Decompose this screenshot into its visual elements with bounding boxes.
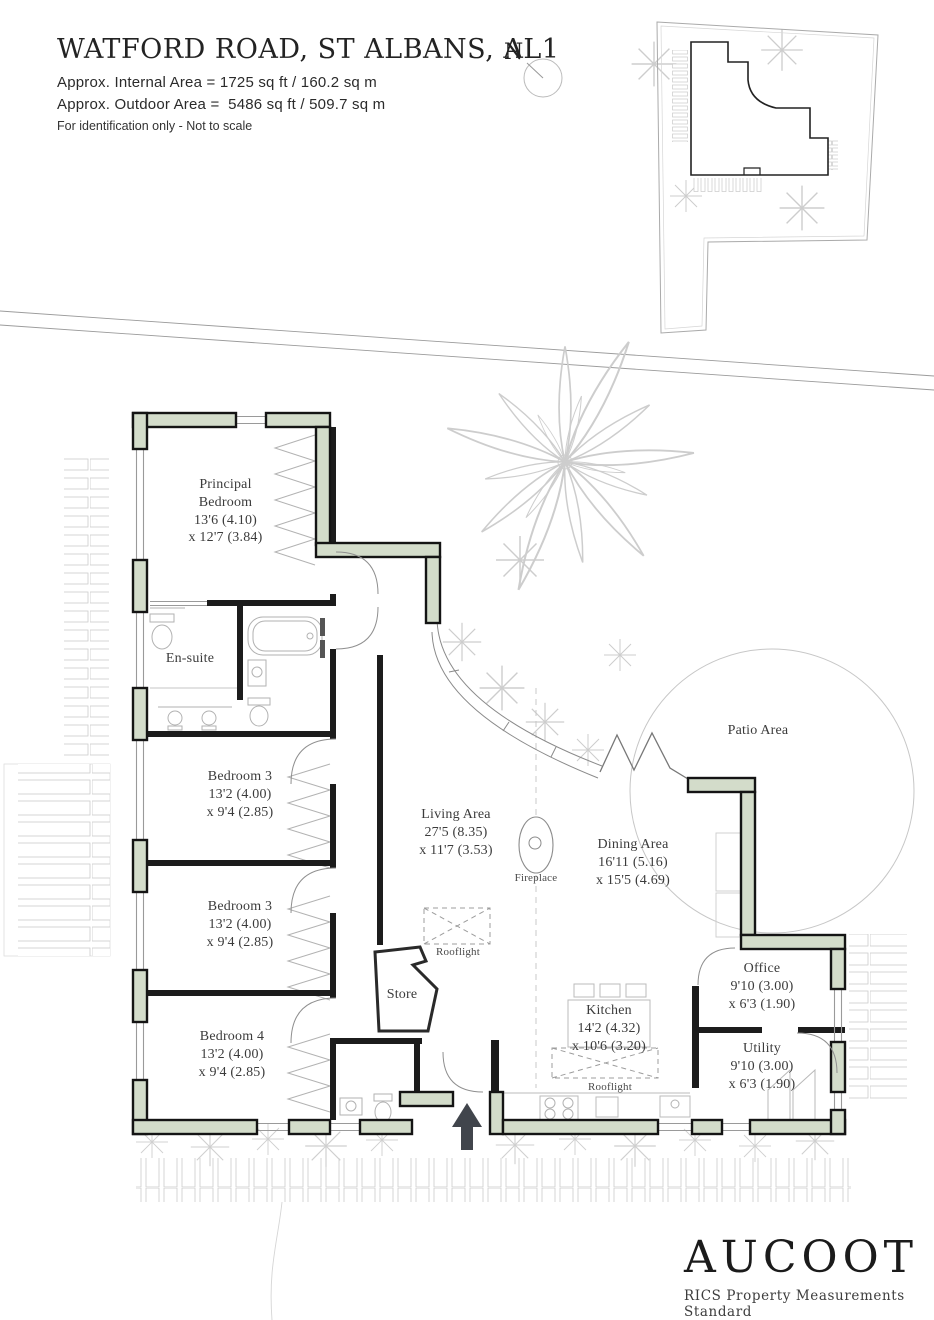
room-name: Rooflight <box>565 1081 655 1095</box>
room-label-ensuite: En-suite <box>140 650 240 668</box>
rooflight-living <box>424 908 490 944</box>
room-label-principal-bedroom: Principal Bedroom 13'6 (4.10) x 12'7 (3.… <box>158 476 293 547</box>
room-dim: x 9'4 (2.85) <box>170 804 310 822</box>
room-label-bedroom3a: Bedroom 3 13'2 (4.00) x 9'4 (2.85) <box>170 768 310 821</box>
room-name: Bedroom 3 <box>170 768 310 786</box>
floorplan-page: WATFORD ROAD, ST ALBANS, AL1 Approx. Int… <box>0 0 934 1320</box>
room-dim: x 12'7 (3.84) <box>158 529 293 547</box>
room-label-kitchen: Kitchen 14'2 (4.32) x 10'6 (3.20) <box>549 1002 669 1055</box>
room-name: Dining Area <box>563 836 703 854</box>
room-dim: x 9'4 (2.85) <box>162 1064 302 1082</box>
room-dim: x 6'3 (1.90) <box>697 1076 827 1094</box>
room-name: Bedroom 3 <box>170 898 310 916</box>
room-dim: 13'2 (4.00) <box>170 786 310 804</box>
brand-logo: AUCOOT <box>684 1232 918 1283</box>
room-name: En-suite <box>140 650 240 668</box>
room-label-store: Store <box>362 986 442 1004</box>
room-label-bedroom4: Bedroom 4 13'2 (4.00) x 9'4 (2.85) <box>162 1028 302 1081</box>
fireplace-icon <box>519 688 553 1088</box>
room-dim: 9'10 (3.00) <box>697 1058 827 1076</box>
room-label-utility: Utility 9'10 (3.00) x 6'3 (1.90) <box>697 1040 827 1093</box>
room-name: Office <box>697 960 827 978</box>
patio-bench <box>716 833 741 937</box>
room-dim: x 6'3 (1.90) <box>697 996 827 1014</box>
room-dim: x 9'4 (2.85) <box>170 934 310 952</box>
room-label-office: Office 9'10 (3.00) x 6'3 (1.90) <box>697 960 827 1013</box>
room-name: Rooflight <box>413 946 503 960</box>
room-dim: 9'10 (3.00) <box>697 978 827 996</box>
page-title: WATFORD ROAD, ST ALBANS, AL1 <box>57 34 559 65</box>
room-dim: 13'6 (4.10) <box>158 512 293 530</box>
room-label-rooflight-living: Rooflight <box>413 946 503 960</box>
room-dim: 13'2 (4.00) <box>162 1046 302 1064</box>
disclaimer-text: For identification only - Not to scale <box>57 119 252 133</box>
outdoor-area-text: Approx. Outdoor Area = 5486 sq ft / 509.… <box>57 96 385 113</box>
room-dim: 16'11 (5.16) <box>563 854 703 872</box>
patio-outline <box>630 649 914 933</box>
bifold-doors <box>600 733 688 779</box>
room-label-dining-area: Dining Area 16'11 (5.16) x 15'5 (4.69) <box>563 836 703 889</box>
room-dim: 13'2 (4.00) <box>170 916 310 934</box>
room-dim: x 15'5 (4.69) <box>563 872 703 890</box>
room-name: Utility <box>697 1040 827 1058</box>
site-boundary-lines <box>0 311 934 390</box>
site-plan-building <box>691 42 828 175</box>
room-name: Store <box>362 986 442 1004</box>
room-name: Bedroom 4 <box>162 1028 302 1046</box>
entrance-arrow-icon <box>452 1103 482 1150</box>
room-dim: x 11'7 (3.53) <box>386 842 526 860</box>
room-name: Kitchen <box>549 1002 669 1020</box>
room-label-rooflight-kitchen: Rooflight <box>565 1081 655 1095</box>
room-label-living-area: Living Area 27'5 (8.35) x 11'7 (3.53) <box>386 806 526 859</box>
room-name: Principal Bedroom <box>181 476 271 512</box>
room-dim: x 10'6 (3.20) <box>549 1038 669 1056</box>
room-dim: 14'2 (4.32) <box>549 1020 669 1038</box>
standard-text: RICS Property Measurements Standard <box>684 1288 934 1320</box>
room-name: Living Area <box>386 806 526 824</box>
north-label: N <box>504 40 523 65</box>
room-label-patio-area: Patio Area <box>693 722 823 740</box>
internal-area-text: Approx. Internal Area = 1725 sq ft / 160… <box>57 74 377 91</box>
room-dim: 27'5 (8.35) <box>386 824 526 842</box>
garden-tree <box>443 339 695 766</box>
room-name: Patio Area <box>693 722 823 740</box>
room-label-bedroom3b: Bedroom 3 13'2 (4.00) x 9'4 (2.85) <box>170 898 310 951</box>
site-plan <box>632 22 878 333</box>
